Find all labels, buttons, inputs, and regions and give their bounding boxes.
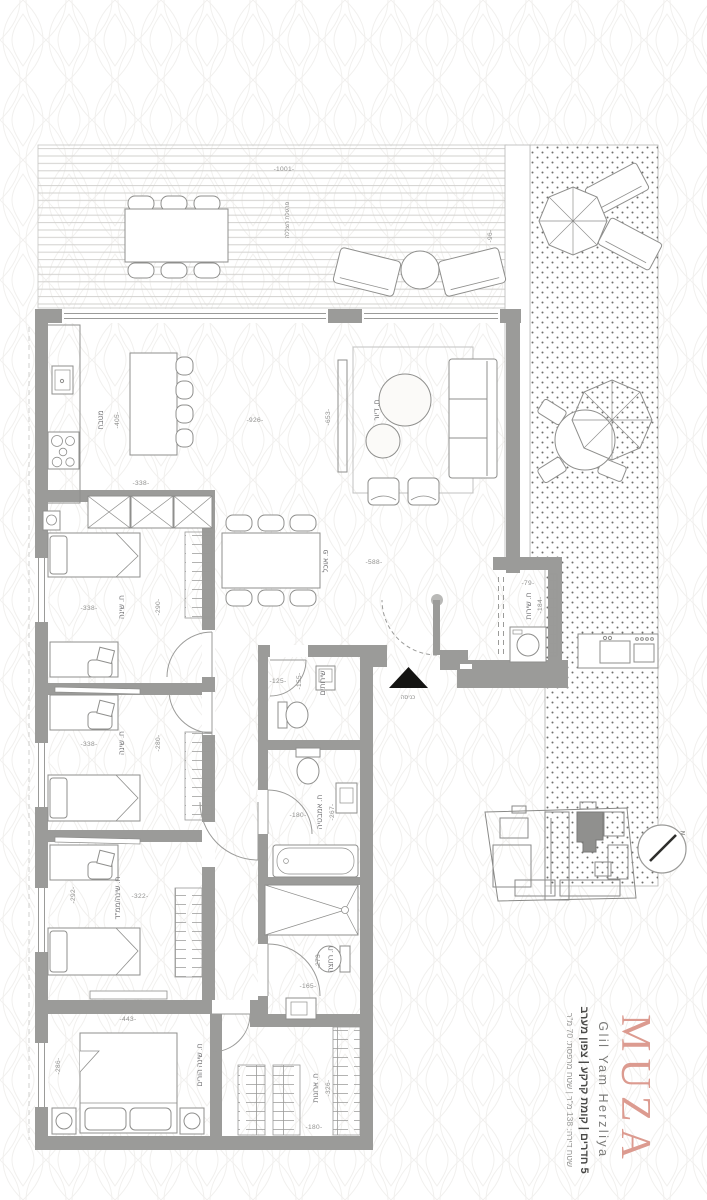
north-arrow: N — [638, 825, 687, 873]
umbrella-icon — [539, 187, 607, 255]
label-living: ח. דיור — [372, 399, 381, 420]
toilet-bath1 — [296, 748, 320, 784]
dim-service-width: -79- — [522, 580, 535, 587]
dim-kitchen-width: -926- — [247, 417, 264, 424]
logo-muza: MUZA — [613, 1014, 657, 1166]
shower — [265, 885, 358, 935]
brand-block: MUZA Glil Yam Herzliya 5 חדרים | קומת קר… — [563, 995, 659, 1185]
north-label: N — [681, 831, 687, 835]
project-location: Glil Yam Herzliya — [596, 1021, 610, 1158]
dining-set — [222, 515, 320, 606]
label-entrance: כניסה — [401, 695, 416, 701]
apartment-spec-line: 5 חדרים | קומת קרקע | צפון מערב — [578, 1006, 590, 1173]
single-bed — [48, 775, 140, 821]
umbrella-icon — [572, 380, 652, 460]
deck-side-table — [401, 251, 439, 289]
label-kitchen: מטבח — [96, 410, 105, 429]
sink-shower-room — [286, 998, 316, 1019]
dim-toilet-depth: -155- — [296, 673, 303, 690]
dim-living-depth: -653- — [325, 409, 332, 426]
dim-bedroom-b-depth: -280- — [155, 735, 162, 752]
label-bedroom-b: ח. שינה — [117, 731, 126, 755]
wardrobe — [185, 732, 212, 820]
dim-bedroom-c-width: -322- — [132, 893, 149, 900]
dim-kitchen-island: -405- — [114, 412, 121, 429]
coffee-table — [379, 374, 431, 426]
floor-plan-page: N -1001- פרגולת הצללה -96- מטבח -405- -9… — [0, 0, 707, 1200]
dim-deck-width: -1001- — [274, 166, 295, 173]
dim-bathroom-depth: -267- — [329, 804, 336, 821]
dim-shower-depth: -273- — [315, 952, 322, 969]
double-bed — [80, 1033, 177, 1133]
dim-bedroom-a-depth: -290- — [155, 599, 162, 616]
dim-shower-width: -165- — [300, 983, 317, 990]
bathtub — [273, 845, 358, 877]
wardrobe — [185, 532, 212, 618]
dim-deck-depth: -96- — [487, 230, 494, 243]
label-closets: ח. ארונות — [311, 1073, 320, 1103]
garden-round-table — [555, 410, 615, 470]
dim-closets-depth: -180- — [306, 1124, 323, 1131]
single-bed — [48, 928, 140, 975]
bbq-unit — [578, 634, 658, 668]
dim-bedroom-c-depth: -292- — [70, 887, 77, 904]
dim-toilet-width: -125- — [270, 678, 287, 685]
dim-dining-width: -588- — [366, 559, 383, 566]
dim-master-depth: -286- — [55, 1058, 62, 1075]
window — [35, 558, 48, 622]
window — [35, 888, 48, 952]
dim-bedroom-a-width: -338- — [81, 605, 98, 612]
desk — [50, 642, 118, 677]
tv-panel — [90, 991, 167, 999]
label-master: ח. שינה הורים — [195, 1043, 204, 1086]
label-bedroom-a: ח. שינה — [117, 595, 126, 619]
dim-bedroom-b-width: -338- — [81, 741, 98, 748]
label-shower-room: ח. רחצה — [326, 946, 335, 972]
deck-terrace — [38, 145, 507, 308]
dim-kitchen-depth: -338- — [133, 480, 150, 487]
appliance — [43, 511, 60, 530]
dim-master-width: -443- — [120, 1016, 137, 1023]
side-table — [366, 424, 400, 458]
wardrobe — [175, 888, 202, 977]
single-bed — [48, 533, 140, 577]
kitchen-island — [130, 353, 177, 455]
window — [35, 1043, 48, 1107]
dim-service-depth: -184- — [537, 597, 544, 614]
label-dining: פ. אוכל — [321, 549, 330, 572]
sofa — [449, 359, 497, 478]
label-toilet: שירותים — [318, 670, 327, 696]
dim-closets-width: -326- — [325, 1080, 332, 1097]
sink-bath1 — [336, 783, 357, 813]
outdoor-dining-set — [125, 196, 228, 278]
desk — [50, 695, 118, 730]
window — [35, 743, 48, 807]
label-pergola: פרגולת הצללה — [283, 201, 291, 238]
closet-boxes — [88, 496, 212, 528]
outdoor-table — [125, 209, 228, 262]
apartment-area-line: שטח דירה: 138 מ"ר | שטח מרפסת: 70 מ"ר — [565, 1013, 575, 1167]
dining-table — [222, 533, 320, 588]
label-service: ח. שירות — [524, 592, 533, 619]
label-bedroom-c: ח. שינה/ממ"ד — [113, 876, 122, 919]
dim-bathroom-width: -180- — [290, 812, 307, 819]
label-bathroom: ח. אמבטיה — [315, 795, 324, 830]
desk — [50, 845, 118, 880]
